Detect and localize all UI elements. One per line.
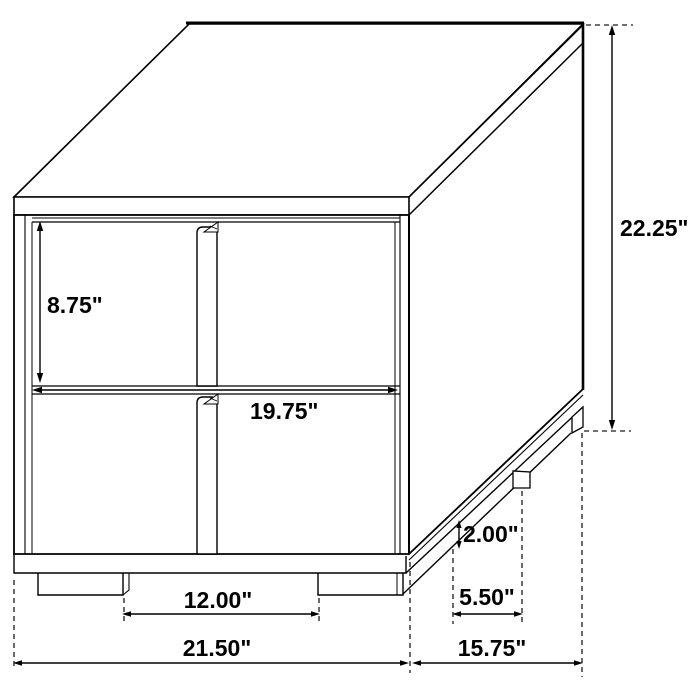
dim-overall-width: 21.50"	[13, 562, 410, 673]
dim-label-overall-height: 22.25"	[620, 215, 688, 241]
front-base-band	[14, 554, 406, 573]
dim-front-leg-spacing: 12.00"	[122, 587, 320, 622]
nightstand-dimension-diagram: 8.75" 19.75" 22.25" 2.00" 5.50"	[0, 0, 700, 700]
dim-base-height: 2.00"	[456, 520, 518, 549]
dim-label-side-leg-setback: 5.50"	[459, 584, 515, 610]
dim-overall-height: 22.25"	[584, 25, 688, 431]
dim-label-overall-depth: 15.75"	[458, 635, 526, 661]
side-leg	[513, 471, 530, 488]
dim-label-drawer-front-height: 8.75"	[47, 292, 103, 318]
dim-label-drawer-width: 19.75"	[250, 398, 318, 424]
dim-label-front-leg-spacing: 12.00"	[184, 587, 252, 613]
diagram-canvas: 8.75" 19.75" 22.25" 2.00" 5.50"	[0, 0, 700, 700]
dim-label-overall-width: 21.50"	[183, 635, 251, 661]
front-right-leg	[318, 573, 403, 595]
lower-handle	[197, 397, 217, 554]
dim-label-base-height: 2.00"	[463, 521, 519, 547]
dim-side-leg-setback: 5.50"	[452, 491, 523, 624]
front-left-leg	[38, 573, 123, 595]
back-leg	[572, 407, 583, 433]
upper-handle	[197, 227, 217, 386]
